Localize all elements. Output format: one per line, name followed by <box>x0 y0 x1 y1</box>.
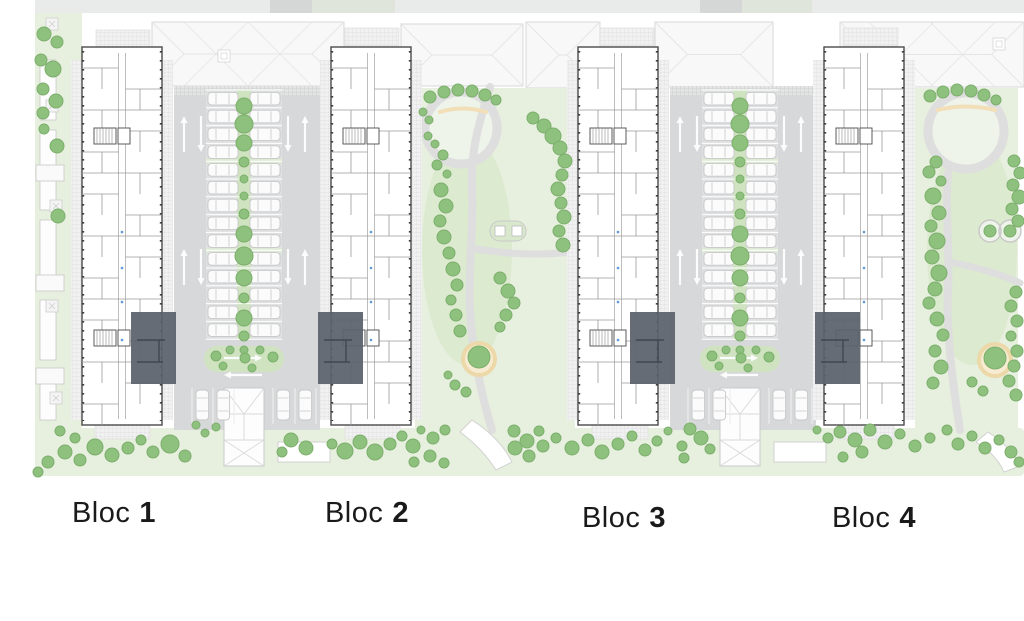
tree <box>558 154 572 168</box>
parked-car <box>746 146 776 159</box>
parked-car <box>196 390 209 420</box>
tree <box>823 433 833 443</box>
tree <box>556 169 568 181</box>
parked-car <box>250 253 280 266</box>
play-box <box>495 226 505 236</box>
parked-car <box>704 253 734 266</box>
tree <box>468 346 490 368</box>
tree <box>838 452 848 462</box>
tree <box>451 279 463 291</box>
tree <box>434 183 448 197</box>
tree <box>925 188 941 204</box>
tree <box>446 295 456 305</box>
bloc-3-label[interactable]: Bloc3 <box>582 502 666 535</box>
entrance-pad <box>774 442 826 462</box>
terrace-pad <box>36 368 64 384</box>
tree <box>461 387 471 397</box>
tree <box>37 83 49 95</box>
tree <box>192 421 200 429</box>
tree <box>236 270 252 286</box>
tree <box>438 150 448 160</box>
tree <box>122 442 134 454</box>
tree <box>437 230 451 244</box>
tree <box>553 225 565 237</box>
tree <box>424 91 436 103</box>
tree <box>627 431 637 441</box>
parked-car <box>746 324 776 337</box>
parked-car <box>704 110 734 123</box>
tree <box>582 434 594 446</box>
tree <box>732 98 748 114</box>
tree <box>500 309 512 321</box>
tree <box>735 331 745 341</box>
parked-car <box>704 324 734 337</box>
tree <box>744 364 752 372</box>
tree <box>419 108 427 116</box>
tree <box>1011 315 1023 327</box>
tree <box>639 444 651 456</box>
tree <box>984 347 1006 369</box>
tree <box>450 309 462 321</box>
parked-car <box>704 288 734 301</box>
tree <box>934 360 948 374</box>
parked-car <box>746 110 776 123</box>
parked-car <box>208 235 238 248</box>
tree <box>994 435 1004 445</box>
tree <box>212 423 220 431</box>
parked-car <box>250 146 280 159</box>
tree <box>565 441 579 455</box>
tree <box>1010 286 1022 298</box>
parked-car <box>704 128 734 141</box>
road-green-verge <box>312 0 395 13</box>
tree <box>479 89 491 101</box>
tree <box>895 429 905 439</box>
bloc-2-label[interactable]: Bloc2 <box>325 497 409 530</box>
tree <box>923 166 935 178</box>
door-mark <box>863 267 866 270</box>
tree <box>937 86 949 98</box>
tree <box>925 250 939 264</box>
elevator-core <box>118 128 130 144</box>
tree <box>924 90 936 102</box>
tree <box>1012 215 1024 227</box>
tree <box>534 426 544 436</box>
tree <box>240 353 250 363</box>
tree <box>1005 446 1017 458</box>
tree <box>284 433 298 447</box>
elevator-core <box>860 128 872 144</box>
parked-car <box>208 146 238 159</box>
door-mark <box>617 339 620 342</box>
tree <box>1006 331 1016 341</box>
tree <box>527 112 539 124</box>
door-mark <box>863 301 866 304</box>
tree <box>1011 345 1023 357</box>
bloc-1-label-number: 1 <box>139 497 156 529</box>
parked-car <box>746 92 776 105</box>
tree <box>553 141 567 155</box>
elevator-core <box>614 128 626 144</box>
tree <box>406 439 420 453</box>
tree <box>58 445 72 459</box>
tree <box>523 450 535 462</box>
bloc-1-label[interactable]: Bloc1 <box>72 497 156 530</box>
parked-car <box>746 306 776 319</box>
site-plan: Bloc1 Bloc2 Bloc3 Bloc4 <box>0 0 1024 621</box>
parked-car <box>299 390 312 420</box>
parked-car <box>746 199 776 212</box>
tree <box>864 424 876 436</box>
entry-paving <box>592 425 648 439</box>
parked-car <box>704 181 734 194</box>
tree <box>929 233 945 249</box>
terrace-pad <box>36 165 64 181</box>
tree <box>248 364 256 372</box>
tree <box>1012 190 1024 204</box>
parked-car <box>208 164 238 177</box>
bloc-1-selected-unit[interactable] <box>131 312 176 384</box>
tree <box>679 453 689 463</box>
door-mark <box>863 339 866 342</box>
tree <box>967 431 977 441</box>
tree <box>452 84 464 96</box>
door-mark <box>617 301 620 304</box>
terrace-pad <box>36 275 64 291</box>
parked-car <box>746 181 776 194</box>
tree <box>494 272 506 284</box>
tree <box>931 265 947 281</box>
parked-car <box>704 270 734 283</box>
tree <box>925 433 935 443</box>
parked-car <box>250 306 280 319</box>
tree <box>551 182 565 196</box>
entry-paving <box>345 425 400 439</box>
tree <box>337 443 353 459</box>
tree <box>105 448 119 462</box>
parked-car <box>250 324 280 337</box>
tree <box>707 351 717 361</box>
tree <box>813 426 821 434</box>
roof-vent <box>218 50 230 62</box>
tree <box>732 135 748 151</box>
tree <box>1006 203 1018 215</box>
parked-car <box>250 217 280 230</box>
tree <box>299 441 313 455</box>
bloc-3-selected-unit[interactable] <box>630 312 675 384</box>
tree <box>440 425 450 435</box>
entry-paving <box>345 28 399 46</box>
parked-car <box>746 235 776 248</box>
tree <box>443 170 451 178</box>
tree <box>136 435 146 445</box>
tree <box>764 352 774 362</box>
parked-car <box>704 235 734 248</box>
tree <box>834 426 846 438</box>
tree <box>684 423 696 435</box>
balcony-strip <box>71 60 82 420</box>
door-mark <box>370 339 373 342</box>
tree <box>431 140 439 148</box>
tree <box>327 439 337 449</box>
tree <box>1010 389 1022 401</box>
parked-car <box>704 92 734 105</box>
planter-tree <box>1004 225 1016 237</box>
tree <box>556 238 570 252</box>
bloc-4-selected-unit[interactable] <box>815 312 860 384</box>
elevator-core <box>614 330 626 346</box>
tree <box>424 450 436 462</box>
tree <box>752 346 760 354</box>
top-road <box>35 0 1024 13</box>
tree <box>937 329 949 341</box>
tree <box>694 431 708 445</box>
bloc-2-label-word: Bloc <box>325 497 383 529</box>
tree <box>732 226 748 242</box>
tree <box>35 54 47 66</box>
tree <box>384 438 396 450</box>
parked-car <box>746 164 776 177</box>
parked-car <box>704 164 734 177</box>
tree <box>454 325 466 337</box>
tree <box>942 425 952 435</box>
tree <box>1014 167 1024 179</box>
parked-car <box>208 110 238 123</box>
tree <box>45 61 61 77</box>
bloc-2-selected-unit[interactable] <box>318 312 363 384</box>
tree <box>425 116 433 124</box>
tree <box>239 157 249 167</box>
tree <box>427 432 439 444</box>
tree <box>226 346 234 354</box>
bloc-3-label-number: 3 <box>649 502 666 534</box>
parked-car <box>250 110 280 123</box>
tree <box>235 115 253 133</box>
tree <box>508 441 522 455</box>
parked-car <box>208 288 238 301</box>
tree <box>925 220 937 232</box>
parked-car <box>217 390 230 420</box>
tree <box>466 85 478 97</box>
tree <box>736 192 744 200</box>
tree <box>55 426 65 436</box>
tree <box>236 310 252 326</box>
tree <box>367 444 383 460</box>
tree <box>424 132 432 140</box>
tree <box>147 446 159 458</box>
tree <box>211 351 221 361</box>
door-mark <box>121 339 124 342</box>
tree <box>736 353 746 363</box>
tree <box>923 297 935 309</box>
tree <box>664 427 672 435</box>
bloc-4-label-number: 4 <box>899 502 916 534</box>
tree <box>491 95 501 105</box>
parked-car <box>704 199 734 212</box>
tree <box>735 293 745 303</box>
tree <box>443 247 455 259</box>
parked-car <box>250 288 280 301</box>
elevator-core <box>367 128 379 144</box>
tree <box>444 371 452 379</box>
parked-car <box>208 181 238 194</box>
tree <box>74 454 86 466</box>
tree <box>495 322 505 332</box>
bloc-2-label-number: 2 <box>392 497 409 529</box>
door-mark <box>370 231 373 234</box>
parked-car <box>713 390 726 420</box>
tree <box>268 352 278 362</box>
tree <box>909 440 921 452</box>
parked-car <box>746 128 776 141</box>
tree <box>87 439 103 455</box>
tree <box>439 199 453 213</box>
tree <box>967 377 977 387</box>
tree <box>652 436 662 446</box>
tree <box>161 435 179 453</box>
balcony-strip <box>567 60 578 420</box>
parked-car <box>746 217 776 230</box>
tree <box>848 433 862 447</box>
tree <box>952 438 964 450</box>
parked-car <box>208 306 238 319</box>
tree <box>936 176 946 186</box>
tree <box>1005 300 1017 312</box>
door-mark <box>121 231 124 234</box>
tree <box>39 124 49 134</box>
tree <box>50 139 64 153</box>
tree <box>236 135 252 151</box>
tree <box>417 426 425 434</box>
parked-car <box>208 324 238 337</box>
bloc-1-label-word: Bloc <box>72 497 130 529</box>
tree <box>37 107 49 119</box>
tree <box>927 377 939 389</box>
parked-car <box>208 92 238 105</box>
bloc-4-label-word: Bloc <box>832 502 890 534</box>
door-mark <box>121 267 124 270</box>
tree <box>409 457 419 467</box>
tree <box>1008 155 1020 167</box>
elevator-core <box>367 330 379 346</box>
tree <box>256 346 264 354</box>
tree <box>735 209 745 219</box>
door-mark <box>863 231 866 234</box>
tree <box>735 157 745 167</box>
tree <box>1007 179 1019 191</box>
tree <box>722 346 730 354</box>
parked-car <box>704 306 734 319</box>
elevator-core <box>118 330 130 346</box>
road-green-verge <box>742 0 812 13</box>
tree <box>432 160 442 170</box>
tree <box>555 197 567 209</box>
parked-car <box>208 217 238 230</box>
tree <box>70 433 80 443</box>
tree <box>501 284 515 298</box>
road-crosswalk <box>270 0 312 13</box>
tree <box>705 444 715 454</box>
tree <box>49 94 63 108</box>
tree <box>236 226 252 242</box>
tree <box>219 362 227 370</box>
parked-car <box>208 199 238 212</box>
tree <box>508 297 520 309</box>
tree <box>978 89 990 101</box>
tree <box>537 440 549 452</box>
tree <box>878 435 892 449</box>
tree <box>731 247 749 265</box>
tree <box>450 380 460 390</box>
tree <box>240 175 248 183</box>
door-mark <box>121 301 124 304</box>
tree <box>978 386 988 396</box>
parked-car <box>208 270 238 283</box>
tree <box>551 433 561 443</box>
tree <box>51 36 63 48</box>
tree <box>595 445 609 459</box>
parked-car <box>795 390 808 420</box>
parked-car <box>250 199 280 212</box>
planter-tree <box>984 225 996 237</box>
bloc-4-label[interactable]: Bloc4 <box>832 502 916 535</box>
parked-car <box>250 181 280 194</box>
tree <box>353 435 367 449</box>
tree <box>732 310 748 326</box>
parked-car <box>746 288 776 301</box>
tree <box>715 362 723 370</box>
entry-paving <box>600 28 654 46</box>
tree <box>236 98 252 114</box>
door-mark <box>370 301 373 304</box>
tree <box>856 446 868 458</box>
parked-car <box>208 128 238 141</box>
elevator-core <box>860 330 872 346</box>
parked-car <box>208 253 238 266</box>
door-mark <box>370 267 373 270</box>
tree <box>179 450 191 462</box>
tree <box>239 331 249 341</box>
parked-car <box>250 164 280 177</box>
tree <box>508 425 520 437</box>
tree <box>930 312 944 326</box>
tree <box>37 27 51 41</box>
parked-car <box>277 390 290 420</box>
tree <box>979 442 991 454</box>
tree <box>235 247 253 265</box>
tree <box>239 293 249 303</box>
parked-car <box>250 270 280 283</box>
tree <box>397 431 407 441</box>
tree <box>677 441 687 451</box>
tree <box>277 447 287 457</box>
tree <box>932 206 946 220</box>
tree <box>438 86 450 98</box>
tree <box>33 467 43 477</box>
tree <box>434 215 446 227</box>
door-mark <box>617 231 620 234</box>
tree <box>928 282 942 296</box>
tree <box>965 85 977 97</box>
tree <box>42 456 54 468</box>
parked-car <box>692 390 705 420</box>
tree <box>736 175 744 183</box>
tree <box>240 192 248 200</box>
tree <box>612 438 624 450</box>
roof-vent <box>993 38 1005 50</box>
tree <box>1014 457 1024 467</box>
tree <box>439 458 449 468</box>
